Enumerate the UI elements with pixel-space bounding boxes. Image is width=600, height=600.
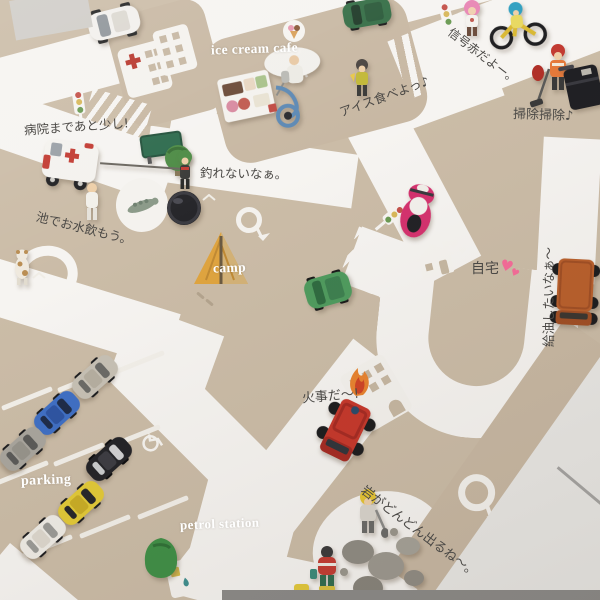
label-home: 自宅 [471, 262, 499, 277]
tent-footprint-mark [205, 298, 214, 306]
label-ice-cream-cafe: ice cream cafe [211, 40, 299, 58]
mat-bottom-edge-shadow [222, 590, 600, 600]
black-pot [164, 188, 204, 228]
white-figure [80, 182, 104, 224]
label-camp: camp [213, 260, 247, 276]
bird-mark [202, 194, 216, 202]
label-cant-catch-fish: 釣れないなぁ。 [200, 166, 287, 181]
floor-tile-top-left [9, 0, 93, 40]
label-refuel: 給油したいなぁ〜 [542, 247, 556, 347]
construction-worker-red [308, 544, 346, 592]
tent-footprint-mark [196, 291, 205, 299]
parking-line [137, 495, 189, 520]
green-car [297, 264, 358, 317]
green-bush [140, 536, 182, 580]
bird-mark [32, 272, 46, 280]
road-bottom-left [0, 543, 106, 600]
label-petrol-station: petrol station [180, 516, 260, 533]
home-house-icon [410, 236, 468, 282]
label-parking: parking [21, 472, 72, 489]
camp-sign-icon [232, 206, 272, 242]
toy-town-playmat-photo: ↙ [0, 0, 600, 600]
label-cleaning: 掃除掃除♪ [513, 108, 574, 124]
dog-figure [10, 248, 34, 286]
